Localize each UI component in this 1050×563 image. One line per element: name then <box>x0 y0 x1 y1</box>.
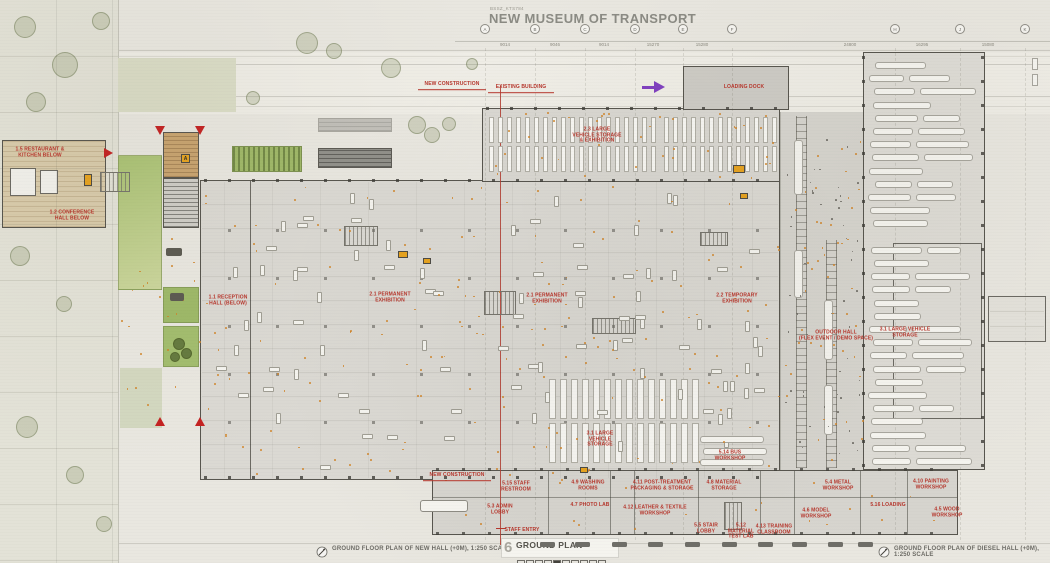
column-marker <box>228 421 231 424</box>
vehicle-silhouette <box>498 346 509 351</box>
storage-bay <box>597 146 602 172</box>
scatter-dot <box>393 190 395 192</box>
column-marker <box>981 128 984 131</box>
aisle-line <box>416 182 417 478</box>
scatter-dot <box>302 468 304 470</box>
transport-icon <box>858 542 873 547</box>
dimension-text: 15080 <box>982 42 995 47</box>
scatter-dot <box>147 282 149 284</box>
train-silhouette <box>875 379 923 386</box>
aisle-line <box>202 372 778 373</box>
train-silhouette <box>870 432 926 439</box>
column-marker <box>612 229 615 232</box>
column-marker <box>420 373 423 376</box>
storage-bay <box>626 423 633 463</box>
scatter-dot <box>167 316 169 318</box>
room-label: 5.16 LOADING <box>865 503 911 509</box>
scatter-dot <box>636 270 638 272</box>
aisle-line <box>704 182 705 478</box>
column-marker <box>486 107 489 110</box>
column-marker <box>436 532 439 535</box>
scatter-dot <box>277 373 279 375</box>
scatter-dot <box>143 285 145 287</box>
scatter-dot <box>578 524 580 526</box>
dimension-text: 9014 <box>599 42 609 47</box>
column-marker <box>396 476 399 479</box>
people-dot <box>800 295 802 297</box>
column-marker <box>654 107 657 110</box>
vehicle-silhouette <box>263 387 274 392</box>
scatter-dot <box>634 528 636 530</box>
column-marker <box>732 179 735 182</box>
scatter-dot <box>790 373 792 375</box>
scatter-dot <box>565 356 567 358</box>
tile-seam <box>0 392 118 393</box>
train-silhouette <box>873 405 914 412</box>
vehicle-silhouette <box>369 199 374 210</box>
aisle-line <box>272 182 273 478</box>
scatter-dot <box>386 320 388 322</box>
scatter-dot <box>294 199 296 201</box>
column-marker <box>324 277 327 280</box>
storage-bay <box>560 423 567 463</box>
scatter-dot <box>871 495 873 497</box>
storage-bay <box>718 117 723 143</box>
scatter-dot <box>349 230 351 232</box>
people-dot <box>787 174 789 176</box>
storage-bay <box>489 117 494 143</box>
vehicle-silhouette <box>744 388 749 399</box>
storage-bay <box>633 117 638 143</box>
column-marker <box>748 468 751 471</box>
people-dot <box>790 390 792 392</box>
column-marker <box>878 468 881 471</box>
train-silhouette <box>873 339 912 346</box>
dimension-text: 15280 <box>696 42 709 47</box>
column-marker <box>566 468 569 471</box>
scatter-dot <box>552 472 554 474</box>
column-marker <box>276 476 279 479</box>
column-marker <box>348 476 351 479</box>
scatter-dot <box>798 342 800 344</box>
aisle-line <box>202 204 778 205</box>
storage-bay <box>664 117 669 143</box>
column-marker <box>981 440 984 443</box>
people-dot <box>788 331 790 333</box>
column-marker <box>708 373 711 376</box>
scatter-dot <box>419 282 421 284</box>
vehicle-silhouette <box>745 321 750 332</box>
scatter-dot <box>270 430 272 432</box>
vehicle-silhouette <box>303 216 314 221</box>
column-marker <box>862 200 865 203</box>
room-label: 5.3 ADMIN LOBBY <box>480 504 520 515</box>
room-label: 4.5 WOOD WORKSHOP <box>925 507 969 518</box>
scatter-dot <box>786 395 788 397</box>
storage-bay <box>673 117 678 143</box>
storage-bay <box>670 379 677 419</box>
people-dot <box>835 199 837 201</box>
scatter-dot <box>816 221 818 223</box>
scatter-dot <box>846 421 848 423</box>
storage-bay <box>516 146 521 172</box>
room-label: 2.1 PERMANENT EXHIBITION <box>519 293 575 304</box>
column-marker <box>826 532 829 535</box>
storage-bay <box>498 146 503 172</box>
scatter-dot <box>842 350 844 352</box>
vehicle-silhouette <box>635 315 646 320</box>
grid-bubble: D <box>630 24 640 34</box>
scatter-dot <box>558 159 560 161</box>
scatter-dot <box>772 142 774 144</box>
column-marker <box>981 56 984 59</box>
stair-core <box>344 226 378 246</box>
tile-seam <box>0 448 118 449</box>
scatter-dot <box>855 325 857 327</box>
vehicle-silhouette <box>320 345 325 356</box>
column-marker <box>588 179 591 182</box>
scatter-dot <box>544 328 546 330</box>
storage-bay <box>543 146 548 172</box>
vehicle-silhouette <box>297 223 308 228</box>
room-label: 5.14 BUS WORKSHOP <box>708 450 752 461</box>
column-marker <box>582 107 585 110</box>
scatter-dot <box>680 285 682 287</box>
column-marker <box>756 229 759 232</box>
scatter-dot <box>777 246 779 248</box>
column-marker <box>670 468 673 471</box>
vehicle-silhouette <box>673 195 678 206</box>
scatter-dot <box>584 342 586 344</box>
storage-bay <box>571 379 578 419</box>
vehicle-silhouette <box>697 319 702 330</box>
people-dot <box>840 397 842 399</box>
scatter-dot <box>255 225 257 227</box>
column-marker <box>276 179 279 182</box>
scatter-dot <box>910 496 912 498</box>
people-dot <box>838 207 840 209</box>
storage-bay <box>745 146 750 172</box>
grid-line <box>895 48 896 540</box>
storage-bay <box>692 423 699 463</box>
scatter-dot <box>837 242 839 244</box>
column-marker <box>488 532 491 535</box>
column-marker <box>981 176 984 179</box>
scatter-dot <box>367 453 369 455</box>
column-marker <box>276 277 279 280</box>
scatter-dot <box>765 115 767 117</box>
scatter-dot <box>820 222 822 224</box>
aisle-line <box>464 182 465 478</box>
scatter-dot <box>603 113 605 115</box>
column-marker <box>228 229 231 232</box>
scatter-dot <box>404 244 406 246</box>
column-marker <box>420 229 423 232</box>
vehicle-silhouette <box>672 270 677 281</box>
scatter-dot <box>176 313 178 315</box>
scatter-dot <box>593 231 595 233</box>
column-marker <box>540 476 543 479</box>
grid-bubble: H <box>890 24 900 34</box>
people-dot <box>797 313 799 315</box>
tree <box>14 16 36 38</box>
scatter-dot <box>298 447 300 449</box>
bus-silhouette <box>700 436 764 443</box>
vehicle-silhouette <box>622 338 633 343</box>
scatter-dot <box>584 175 586 177</box>
scatter-dot <box>638 220 640 222</box>
column-marker <box>852 532 855 535</box>
tile-seam <box>0 224 118 225</box>
storage-bay <box>648 423 655 463</box>
column-marker <box>324 373 327 376</box>
column-marker <box>228 373 231 376</box>
storage-bay <box>682 117 687 143</box>
column-marker <box>930 468 933 471</box>
scatter-dot <box>430 356 432 358</box>
storage-bay <box>664 146 669 172</box>
vehicle-silhouette <box>730 381 735 392</box>
column-marker <box>468 373 471 376</box>
grid-bubble: B <box>530 24 540 34</box>
vehicle-silhouette <box>350 193 355 204</box>
column-marker <box>324 179 327 182</box>
room-label: 2.2 TEMPORARY EXHIBITION <box>709 293 765 304</box>
vehicle-silhouette <box>554 196 559 207</box>
scatter-dot <box>167 349 169 351</box>
scatter-dot <box>496 468 498 470</box>
column-marker <box>862 464 865 467</box>
storage-bay <box>651 117 656 143</box>
vehicle-silhouette <box>216 366 227 371</box>
elevator-marker <box>398 251 408 258</box>
train-silhouette <box>919 405 954 412</box>
train-silhouette <box>870 352 908 359</box>
scatter-dot <box>140 353 142 355</box>
vehicle-silhouette <box>667 193 672 204</box>
vehicle-silhouette <box>575 291 586 296</box>
vehicle-silhouette <box>1032 58 1038 70</box>
transport-icon <box>612 542 627 547</box>
grid-bubble: K <box>1020 24 1030 34</box>
scatter-dot <box>768 465 770 467</box>
elevator-marker <box>423 258 431 264</box>
room-label: NEW CONSTRUCTION <box>418 82 486 90</box>
column-marker <box>774 468 777 471</box>
scatter-dot <box>242 446 244 448</box>
storage-bay <box>560 379 567 419</box>
scatter-dot <box>811 268 813 270</box>
vehicle-silhouette <box>718 414 723 425</box>
tile-seam <box>0 168 118 169</box>
people-dot <box>837 411 839 413</box>
column-marker <box>228 325 231 328</box>
aisle-line <box>202 276 778 277</box>
room-label: 1.1 RECEPTION HALL (BELOW) <box>201 295 255 306</box>
scatter-dot <box>736 375 738 377</box>
people-dot <box>857 450 859 452</box>
storage-bay <box>772 117 777 143</box>
column-marker <box>618 532 621 535</box>
people-dot <box>851 259 853 261</box>
scatter-dot <box>474 422 476 424</box>
storage-bay <box>579 146 584 172</box>
column-marker <box>564 373 567 376</box>
vehicle-silhouette <box>749 249 760 254</box>
train-silhouette <box>868 194 911 201</box>
scatter-dot <box>420 369 422 371</box>
vehicle-silhouette <box>244 320 249 331</box>
tree <box>326 43 342 59</box>
aisle-line <box>752 182 753 478</box>
people-dot <box>812 192 814 194</box>
people-dot <box>803 391 805 393</box>
scatter-dot <box>769 163 771 165</box>
vehicle-silhouette <box>320 465 331 470</box>
room-label: 1.5 RESTAURANT & KITCHEN BELOW <box>8 147 72 158</box>
people-dot <box>838 187 840 189</box>
column-marker <box>348 179 351 182</box>
scatter-dot <box>671 231 673 233</box>
scatter-dot <box>817 260 819 262</box>
scatter-dot <box>645 338 647 340</box>
aisle-line <box>202 420 778 421</box>
vehicle-silhouette <box>420 268 425 279</box>
vehicle-silhouette <box>723 381 728 392</box>
transport-icon <box>685 542 700 547</box>
vehicle-silhouette <box>530 219 541 224</box>
scatter-dot <box>199 341 201 343</box>
aisle-line <box>320 182 321 478</box>
scatter-dot <box>766 338 768 340</box>
column-marker <box>862 296 865 299</box>
scatter-dot <box>826 524 828 526</box>
scatter-dot <box>755 509 757 511</box>
tile-seam <box>56 0 57 563</box>
train-silhouette <box>920 88 976 95</box>
scatter-dot <box>768 425 770 427</box>
scatter-dot <box>608 113 610 115</box>
column-marker <box>612 179 615 182</box>
train-silhouette <box>916 458 972 465</box>
column-marker <box>702 107 705 110</box>
column-marker <box>372 373 375 376</box>
column-marker <box>558 107 561 110</box>
room-label: 4.10 PAINTING WORKSHOP <box>905 479 957 490</box>
storage-bay <box>534 146 539 172</box>
column-marker <box>660 229 663 232</box>
column-marker <box>660 277 663 280</box>
scatter-dot <box>260 449 262 451</box>
scatter-dot <box>662 311 664 313</box>
column-marker <box>930 532 933 535</box>
column-marker <box>862 224 865 227</box>
scatter-dot <box>609 340 611 342</box>
vehicle-silhouette <box>679 345 690 350</box>
scatter-dot <box>481 187 483 189</box>
column-marker <box>862 440 865 443</box>
train-silhouette <box>873 128 913 135</box>
train-silhouette <box>918 128 964 135</box>
stair-core <box>700 232 728 246</box>
vehicle-silhouette <box>703 409 714 414</box>
scatter-dot <box>471 198 473 200</box>
scatter-dot <box>217 374 219 376</box>
scatter-dot <box>644 376 646 378</box>
column-marker <box>534 107 537 110</box>
scatter-dot <box>933 520 935 522</box>
column-marker <box>564 229 567 232</box>
scatter-dot <box>612 349 614 351</box>
scatter-dot <box>689 368 691 370</box>
column-marker <box>862 56 865 59</box>
column-marker <box>204 179 207 182</box>
train-silhouette <box>873 220 929 227</box>
column-marker <box>981 320 984 323</box>
vehicle-silhouette <box>577 265 588 270</box>
scatter-dot <box>804 247 806 249</box>
grid-bubble: J <box>955 24 965 34</box>
column-marker <box>468 229 471 232</box>
room-label: 5.15 STAFF RESTROOM <box>494 481 538 492</box>
storage-bay <box>754 117 759 143</box>
scatter-dot <box>597 346 599 348</box>
people-dot <box>790 226 792 228</box>
scatter-dot <box>473 236 475 238</box>
column-marker <box>300 179 303 182</box>
vehicle-silhouette <box>386 240 391 251</box>
people-dot <box>840 201 842 203</box>
aisle-line <box>656 182 657 478</box>
column-marker <box>630 107 633 110</box>
storage-bay <box>763 117 768 143</box>
storage-bay <box>736 117 741 143</box>
scatter-dot <box>256 473 258 475</box>
scatter-dot <box>171 238 173 240</box>
vehicle-silhouette <box>234 345 239 356</box>
people-dot <box>802 447 804 449</box>
vehicle-silhouette <box>444 436 455 441</box>
vehicle-silhouette <box>359 409 370 414</box>
scatter-dot <box>846 313 848 315</box>
vehicle-silhouette <box>257 312 262 323</box>
train-silhouette <box>875 115 918 122</box>
scatter-dot <box>651 280 653 282</box>
storage-bay <box>691 146 696 172</box>
vehicle-silhouette <box>532 413 537 424</box>
train-silhouette <box>874 260 929 267</box>
train-silhouette <box>915 273 969 280</box>
column-marker <box>660 179 663 182</box>
train-silhouette <box>918 339 972 346</box>
scatter-dot <box>457 286 459 288</box>
scatter-dot <box>406 364 408 366</box>
storage-bay <box>637 423 644 463</box>
storage-bay <box>507 146 512 172</box>
scatter-dot <box>461 236 463 238</box>
column-marker <box>862 248 865 251</box>
people-dot <box>857 182 859 184</box>
scatter-dot <box>580 199 582 201</box>
scatter-dot <box>616 358 618 360</box>
column-marker <box>678 107 681 110</box>
train-silhouette <box>875 181 912 188</box>
storage-bay <box>606 146 611 172</box>
vehicle-silhouette <box>276 413 281 424</box>
scatter-dot <box>214 383 216 385</box>
dimension-text: 15270 <box>647 42 660 47</box>
tile-seam <box>0 112 118 113</box>
